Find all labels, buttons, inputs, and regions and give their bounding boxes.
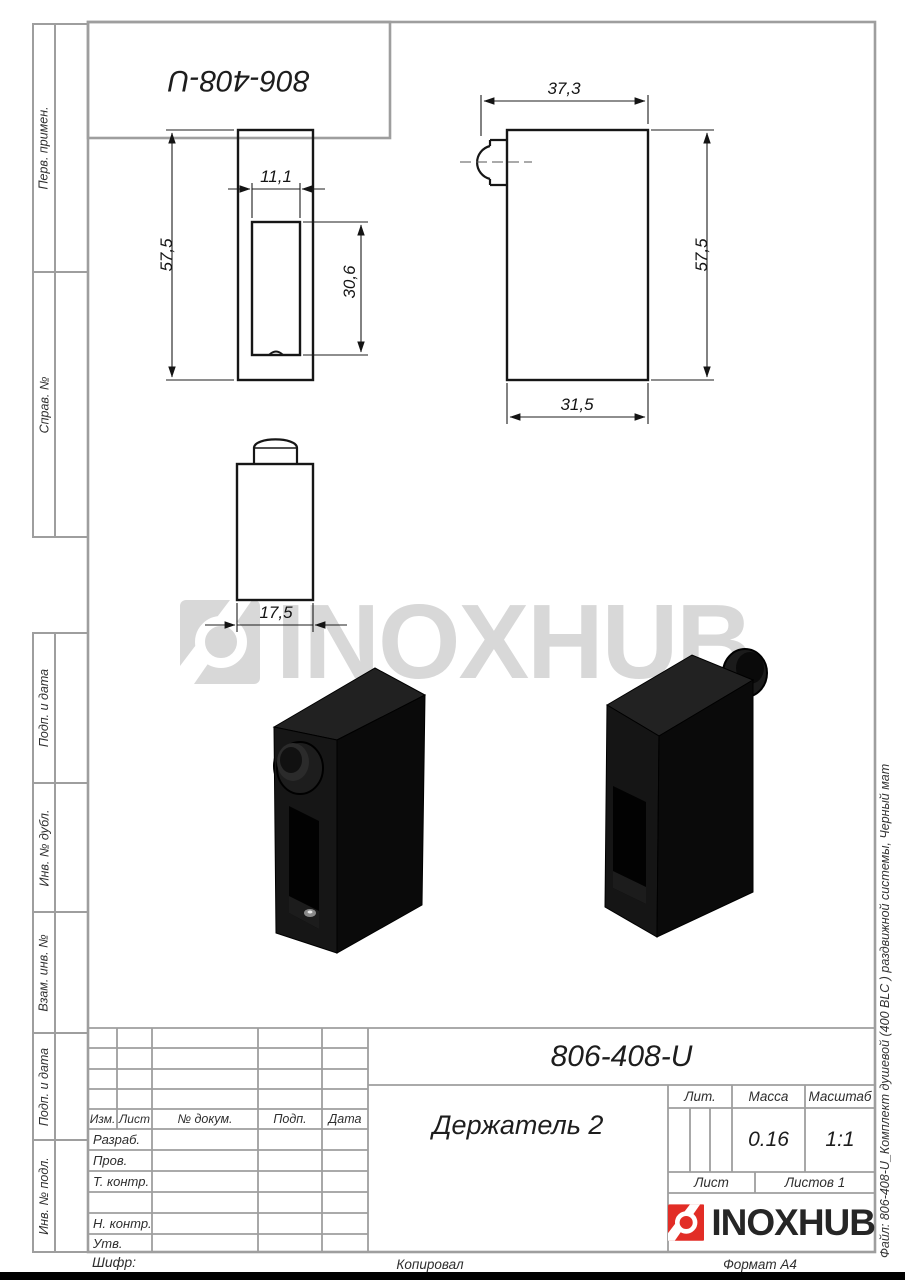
masshtab-value: 1:1 [805, 1108, 875, 1172]
dim-slot-depth: 30,6 [340, 265, 359, 299]
listov-label: Листов 1 [755, 1172, 875, 1193]
row-tkontr: Т. контр. [93, 1171, 152, 1192]
sidebar-item-vzam-inv-no: Взам. инв. № [33, 912, 55, 1033]
massa-value: 0.16 [732, 1108, 805, 1172]
sidebar-item-inv-no-podl: Инв. № подл. [33, 1140, 55, 1252]
col-podp: Подп. [258, 1109, 322, 1129]
dim-slot-width: 11,1 [260, 167, 292, 186]
masshtab-label: Масштаб [805, 1085, 875, 1108]
sidebar-item-sprav-no: Справ. № [33, 272, 55, 537]
col-doc: № докум. [152, 1109, 258, 1129]
inoxhub-logo-icon [668, 1201, 704, 1244]
dim-front-height: 57,5 [157, 238, 176, 272]
dimension-lines [166, 95, 714, 632]
copied-label: Копировал [360, 1256, 500, 1272]
sidebar-item-perv-primen: Перв. примен. [33, 24, 55, 272]
logo-text: INOXHUB [711, 1202, 875, 1244]
file-note: Файл: 806-408-U_Комплект душевой (400 BL… [878, 633, 892, 1258]
format-label: Формат A4 [700, 1256, 820, 1272]
col-data: Дата [322, 1109, 368, 1129]
row-razrab: Разраб. [93, 1129, 152, 1150]
render-left [274, 668, 425, 953]
col-list: Лист [117, 1109, 152, 1129]
dim-side-body-width: 31,5 [560, 395, 594, 414]
sidebar-item-inv-no-dubl: Инв. № дубл. [33, 783, 55, 912]
row-prov: Пров. [93, 1150, 152, 1171]
massa-label: Масса [732, 1085, 805, 1108]
col-izm: Изм. [88, 1109, 117, 1129]
drawing-sheet: INOXHUB [0, 0, 905, 1280]
dim-top-width: 17,5 [259, 603, 293, 622]
top-designation: 806-408-U [88, 22, 390, 138]
sidebar-item-podp-i-data-2: Подп. и дата [33, 1033, 55, 1140]
dim-side-height: 57,5 [692, 238, 711, 272]
cipher-label: Шифр: [92, 1254, 172, 1270]
sidebar-item-podp-i-data-1: Подп. и дата [33, 633, 55, 783]
row-utv: Утв. [93, 1234, 152, 1252]
bottom-edge-bar [0, 1272, 905, 1280]
dimension-labels: 57,5 11,1 30,6 37,3 57,5 31,5 17,5 [157, 79, 711, 622]
company-logo: INOXHUB [668, 1193, 875, 1252]
row-nkontr: Н. контр. [93, 1213, 152, 1234]
side-view [460, 130, 648, 380]
list-label: Лист [668, 1172, 755, 1193]
titleblock-designation: 806-408-U [368, 1028, 875, 1085]
top-view [237, 439, 313, 600]
dim-side-overall-width: 37,3 [547, 79, 581, 98]
lit-label: Лит. [668, 1085, 732, 1108]
titleblock-part-name: Держатель 2 [368, 1085, 668, 1165]
render-right [605, 649, 767, 937]
